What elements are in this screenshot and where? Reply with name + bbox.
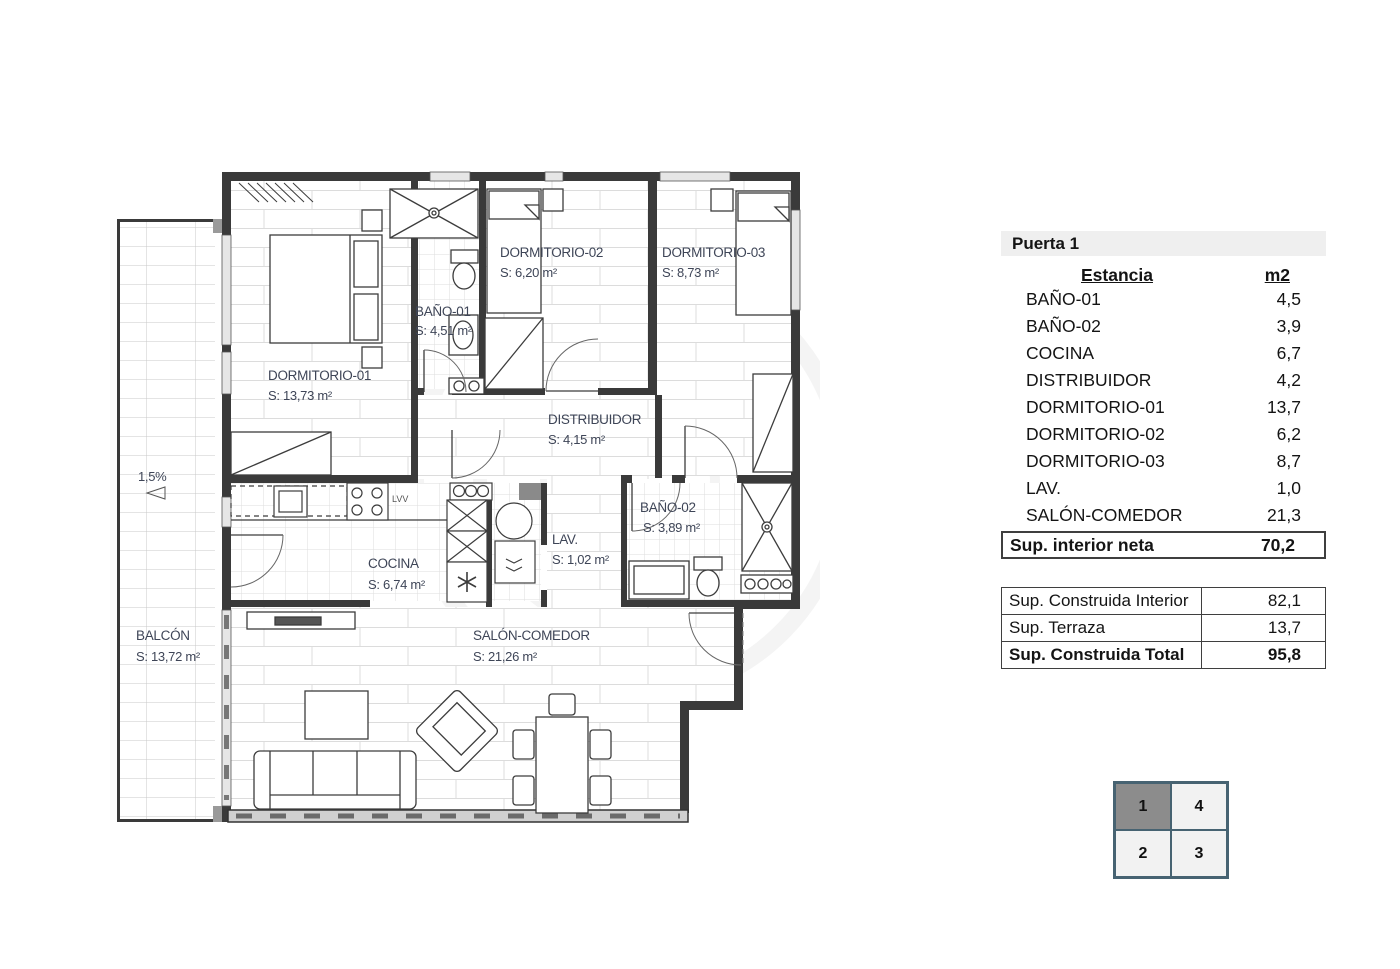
area-bano-02: S: 3,89 m²: [643, 520, 701, 535]
room-name: DORMITORIO-03: [1001, 448, 1165, 475]
room-area: 8,7: [1277, 448, 1326, 475]
area-lavadero: S: 1,02 m²: [552, 552, 610, 567]
room-name: LAV.: [1001, 475, 1061, 502]
room-name: BAÑO-01: [1001, 286, 1101, 313]
label-distribuidor: DISTRIBUIDOR: [548, 412, 642, 427]
floor-plan: DORMITORIO-01 S: 13,73 m² DORMITORIO-02 …: [100, 150, 820, 850]
unit-cell-3: 3: [1171, 830, 1227, 877]
summary-label: Sup. Construida Total: [1002, 642, 1202, 669]
summary-total-row: Sup. Construida Total 95,8: [1002, 642, 1326, 669]
slope-label: 1,5%: [138, 469, 167, 484]
built-area-summary-table: Sup. Construida Interior 82,1 Sup. Terra…: [1001, 587, 1326, 669]
room-area: 4,2: [1277, 367, 1326, 394]
label-bano-02: BAÑO-02: [640, 500, 696, 515]
room-area: 13,7: [1267, 394, 1326, 421]
room-area: 4,5: [1277, 286, 1326, 313]
table-row: COCINA 6,7: [1001, 340, 1326, 367]
area-dormitorio-01: S: 13,73 m²: [268, 388, 333, 403]
furniture-lavadero: [495, 503, 535, 583]
table-row: DORMITORIO-03 8,7: [1001, 448, 1326, 475]
summary-row: Sup. Terraza 13,7: [1002, 615, 1326, 642]
unit-cell-2: 2: [1115, 830, 1171, 877]
column-header-room: Estancia: [1081, 265, 1153, 286]
room-area: 6,7: [1277, 340, 1326, 367]
floorplan-page: DORMITORIO-01 S: 13,73 m² DORMITORIO-02 …: [0, 0, 1400, 969]
summary-value: 82,1: [1202, 588, 1326, 615]
unit-position-grid: 1 4 2 3: [1113, 781, 1229, 879]
summary-value: 95,8: [1202, 642, 1326, 669]
room-area: 21,3: [1267, 502, 1326, 529]
table-row: LAV. 1,0: [1001, 475, 1326, 502]
table-row: BAÑO-01 4,5: [1001, 286, 1326, 313]
room-area: 1,0: [1277, 475, 1326, 502]
net-interior-total-row: Sup. interior neta 70,2: [1001, 531, 1326, 559]
area-balcon: S: 13,72 m²: [136, 649, 201, 664]
summary-label: Sup. Terraza: [1002, 615, 1202, 642]
table-header: Estancia m2: [1001, 256, 1326, 286]
label-lavadero: LAV.: [552, 532, 578, 547]
area-distribuidor: S: 4,15 m²: [548, 432, 606, 447]
room-name: BAÑO-02: [1001, 313, 1101, 340]
column-header-m2: m2: [1265, 265, 1290, 286]
table-row: BAÑO-02 3,9: [1001, 313, 1326, 340]
area-cocina: S: 6,74 m²: [368, 577, 426, 592]
label-salon-comedor: SALÓN-COMEDOR: [473, 628, 590, 643]
room-area: 6,2: [1277, 421, 1326, 448]
label-dormitorio-02: DORMITORIO-02: [500, 245, 603, 260]
room-name: SALÓN-COMEDOR: [1001, 502, 1183, 529]
table-row: SALÓN-COMEDOR 21,3: [1001, 502, 1326, 529]
area-dormitorio-02: S: 6,20 m²: [500, 265, 558, 280]
table-row: DORMITORIO-01 13,7: [1001, 394, 1326, 421]
label-bano-01: BAÑO-01: [415, 304, 471, 319]
area-dormitorio-03: S: 8,73 m²: [662, 265, 720, 280]
label-balcon: BALCÓN: [136, 628, 190, 643]
dishwasher-label: LVV: [392, 494, 408, 504]
room-area: 3,9: [1277, 313, 1326, 340]
unit-cell-1: 1: [1115, 783, 1171, 830]
net-total-value: 70,2: [1261, 533, 1324, 557]
unit-title: Puerta 1: [1001, 231, 1326, 256]
room-name: DORMITORIO-01: [1001, 394, 1165, 421]
area-bano-01: S: 4,51 m²: [415, 323, 473, 338]
table-row: DORMITORIO-02 6,2: [1001, 421, 1326, 448]
area-salon-comedor: S: 21,26 m²: [473, 649, 538, 664]
net-total-label: Sup. interior neta: [1003, 533, 1154, 557]
summary-value: 13,7: [1202, 615, 1326, 642]
summary-label: Sup. Construida Interior: [1002, 588, 1202, 615]
table-row: DISTRIBUIDOR 4,2: [1001, 367, 1326, 394]
room-name: DORMITORIO-02: [1001, 421, 1165, 448]
area-summary-panel: Puerta 1 Estancia m2 BAÑO-01 4,5 BAÑO-02…: [1001, 231, 1326, 669]
label-dormitorio-01: DORMITORIO-01: [268, 368, 371, 383]
unit-cell-4: 4: [1171, 783, 1227, 830]
label-dormitorio-03: DORMITORIO-03: [662, 245, 765, 260]
summary-row: Sup. Construida Interior 82,1: [1002, 588, 1326, 615]
room-name: COCINA: [1001, 340, 1094, 367]
label-cocina: COCINA: [368, 556, 419, 571]
room-name: DISTRIBUIDOR: [1001, 367, 1151, 394]
floor-plan-drawing: DORMITORIO-01 S: 13,73 m² DORMITORIO-02 …: [100, 150, 820, 850]
